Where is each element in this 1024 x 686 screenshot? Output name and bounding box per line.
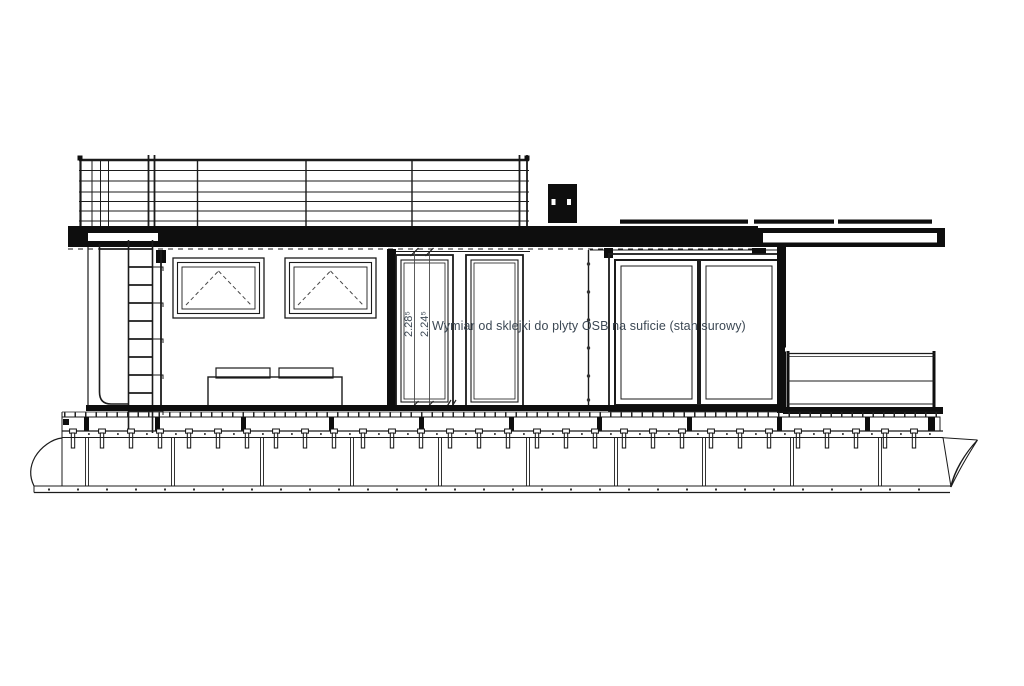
elevation-drawing-canvas: 2.28⁵ 2.24⁵ Wymiar od sklejki do plyty O… xyxy=(0,0,1024,686)
wall-pier xyxy=(387,249,396,410)
houseboat-elevation xyxy=(0,0,1024,686)
roof-terrace-railing xyxy=(78,155,530,227)
tilt-window-2 xyxy=(285,258,376,318)
hull-panel-dividers xyxy=(86,437,882,486)
corner-post xyxy=(777,247,786,413)
pontoon-bow-right xyxy=(940,438,978,488)
roof-overhang xyxy=(755,228,945,247)
tilt-symbol xyxy=(186,271,219,305)
dimension-label-2: 2.24⁵ xyxy=(419,306,431,342)
deck-and-pontoon xyxy=(31,412,978,493)
solar-panel-strip xyxy=(620,220,932,224)
railing-corner-knob xyxy=(78,156,83,161)
chimney-vent xyxy=(548,184,577,223)
railing-corner-knob xyxy=(525,156,530,161)
tilt-symbol xyxy=(298,271,331,305)
floor-slab xyxy=(86,405,943,414)
sofa-bench xyxy=(208,368,342,406)
roof-band xyxy=(68,226,758,249)
annotation-note: Wymiar od sklejki do plyty OSB na sufici… xyxy=(432,320,746,333)
dimension-label-1: 2.28⁵ xyxy=(403,306,415,342)
terrace-railing xyxy=(785,348,937,411)
exterior-ladder xyxy=(100,240,164,433)
left-room xyxy=(88,247,376,411)
pontoon-bow-left xyxy=(31,437,62,486)
tilt-window-1 xyxy=(173,258,264,318)
